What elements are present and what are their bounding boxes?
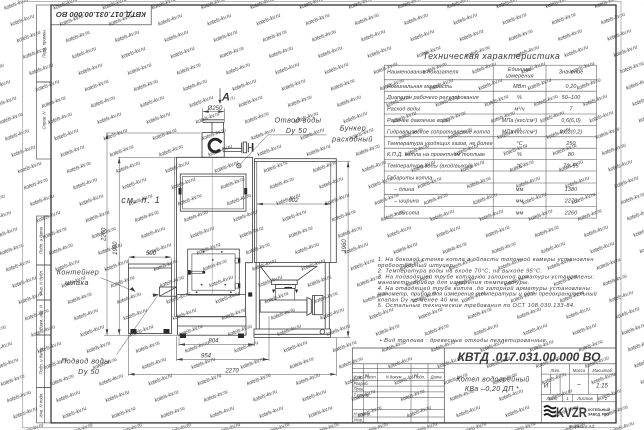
svg-text:N докум.: N докум. [386,374,403,379]
svg-text:Единицы: Единицы [508,67,531,73]
svg-text:Т.контр.: Т.контр. [354,392,371,397]
svg-text:2270: 2270 [564,199,577,205]
svg-text:И: И [544,382,549,389]
svg-text:°С: °С [516,141,522,147]
svg-text:Н.контр.: Н.контр. [354,412,372,417]
svg-text:КВТД.017.031.00.000 ВО: КВТД.017.031.00.000 ВО [56,10,146,19]
svg-text:%: % [517,95,522,101]
svg-text:0,20: 0,20 [566,84,577,90]
svg-text:шлака: шлака [65,278,89,287]
svg-text:Подп.: Подп. [414,374,425,379]
svg-text:Температура воды (вход/выход): Температура воды (вход/выход) [387,164,473,170]
svg-text:KVZR: KVZR [556,404,587,420]
svg-text:Лит.: Лит. [549,368,560,373]
svg-text:мм: мм [516,199,524,205]
svg-text:Подп. и дата: Подп. и дата [38,347,43,375]
svg-text:Подп. и дата: Подп. и дата [38,226,43,254]
svg-text:%: % [517,152,522,158]
svg-text:Инв. N подл.: Инв. N подл. [38,392,43,417]
svg-text:см. п. 1: см. п. 1 [121,195,160,205]
svg-text:– высота: – высота [393,210,419,216]
svg-text:Подвод воды: Подвод воды [61,357,110,366]
svg-text:Рабочее давление воды: Рабочее давление воды [387,118,450,124]
svg-text:2270: 2270 [224,368,239,374]
svg-text:Утв.: Утв. [354,418,364,423]
svg-text:Формат А3: Формат А3 [569,424,595,429]
svg-text:Разраб.: Разраб. [354,381,369,386]
svg-text:Дата: Дата [430,374,443,379]
svg-text:КВТД .017.031.00.000 ВО: КВТД .017.031.00.000 ВО [458,350,602,364]
svg-text:Контейнер: Контейнер [57,268,100,277]
svg-text:Отвод воды: Отвод воды [275,116,322,125]
svg-text:Расход воды: Расход воды [387,107,420,113]
svg-text:измерения: измерения [506,74,534,80]
svg-text:Справ. N: Справ. N [41,111,46,130]
svg-text:–: – [576,381,581,388]
svg-text:КОТЕЛЬНЫЙ: КОТЕЛЬНЫЙ [588,408,611,412]
svg-text:Гидравлическое сопротивление к: Гидравлическое сопротивление котла [387,129,490,135]
svg-text:Температура уходящих газов, не: Температура уходящих газов, не более [387,141,493,147]
svg-text:0,02(0,2): 0,02(0,2) [560,129,583,135]
svg-text:902: 902 [288,198,299,204]
svg-text:70–95: 70–95 [563,164,579,170]
svg-text:Лист: Лист [546,396,558,401]
svg-text:МПа (кгс/см²): МПа (кгс/см²) [502,129,538,135]
svg-text:Техническая характеристика: Техническая характеристика [423,51,561,61]
svg-text:МВт: МВт [513,84,526,90]
svg-text:0,6(6,0): 0,6(6,0) [561,118,581,124]
svg-text:– длина: – длина [393,187,414,193]
svg-text:Dy 50: Dy 50 [286,126,307,135]
svg-text:Листов: Листов [576,396,593,401]
svg-text:Габариты котла: Габариты котла [387,175,432,181]
svg-text:А: А [221,92,230,104]
svg-text:Наименование показателя: Наименование показателя [387,70,459,76]
svg-text:80: 80 [568,152,574,158]
svg-text:Взам. инв. N: Взам. инв. N [38,304,43,330]
svg-text:м³/ч: м³/ч [514,107,524,113]
svg-text:КВа –0,20 ДП *: КВа –0,20 ДП * [465,386,519,393]
svg-text:Номинальная мощность: Номинальная мощность [387,84,452,90]
svg-text:50–100: 50–100 [562,95,581,101]
svg-text:Котел водогрейный: Котел водогрейный [456,376,529,384]
svg-text:(1): (1) [231,96,235,100]
svg-text:Бункер: Бункер [340,124,366,133]
svg-text:МПа (кгс/см²): МПа (кгс/см²) [502,118,538,124]
svg-text:250: 250 [565,141,575,147]
svg-text:Значение: Значение [559,70,584,76]
svg-text:Пров.: Пров. [354,387,365,392]
svg-text:мм: мм [516,187,524,193]
svg-text:500: 500 [146,251,157,257]
svg-text:1990: 1990 [113,241,119,255]
svg-text:954: 954 [201,353,212,359]
svg-text:Изм.: Изм. [353,374,362,379]
svg-text:Dy 50: Dy 50 [78,367,99,376]
svg-text:мм: мм [516,210,524,216]
svg-text:Инв. N дубл.: Инв. N дубл. [38,270,43,295]
svg-text:°С: °С [516,164,522,170]
svg-text:ЗАВОД. РЭП: ЗАВОД. РЭП [588,412,610,416]
svg-text:Ø250: Ø250 [207,106,223,112]
svg-text:2260: 2260 [564,210,577,216]
svg-text:Масса: Масса [573,368,586,373]
svg-text:Перв. примен.: Перв. примен. [41,29,46,58]
svg-text:Лист: Лист [364,374,376,379]
svg-text:1960: 1960 [342,239,348,253]
svg-text:– ширина: – ширина [393,199,419,205]
svg-text:5. Остальные технические требо: 5. Остальные технические требования по О… [378,303,576,309]
svg-text:804: 804 [208,339,219,345]
svg-text:1380: 1380 [565,187,577,193]
svg-text:Масштаб: Масштаб [592,368,612,373]
svg-text:Диапазон рабочего регулировани: Диапазон рабочего регулирования [386,95,479,101]
svg-text:К.П.Д. котла на проектном топл: К.П.Д. котла на проектном топливе [387,152,485,158]
svg-text:1: 1 [566,396,568,401]
svg-text:• Вид топлива : древесные отх: • Вид топлива : древесные отходы пеллети… [380,338,549,344]
svg-text:расходный: расходный [331,135,373,144]
svg-text:2260: 2260 [101,227,107,242]
svg-text:1:15: 1:15 [596,383,608,389]
